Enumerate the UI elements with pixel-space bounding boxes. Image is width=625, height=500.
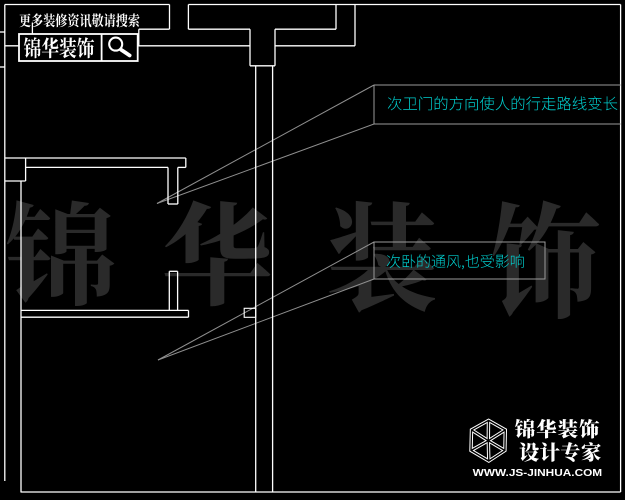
svg-text:WWW.JS-JINHUA.COM: WWW.JS-JINHUA.COM	[473, 468, 603, 479]
